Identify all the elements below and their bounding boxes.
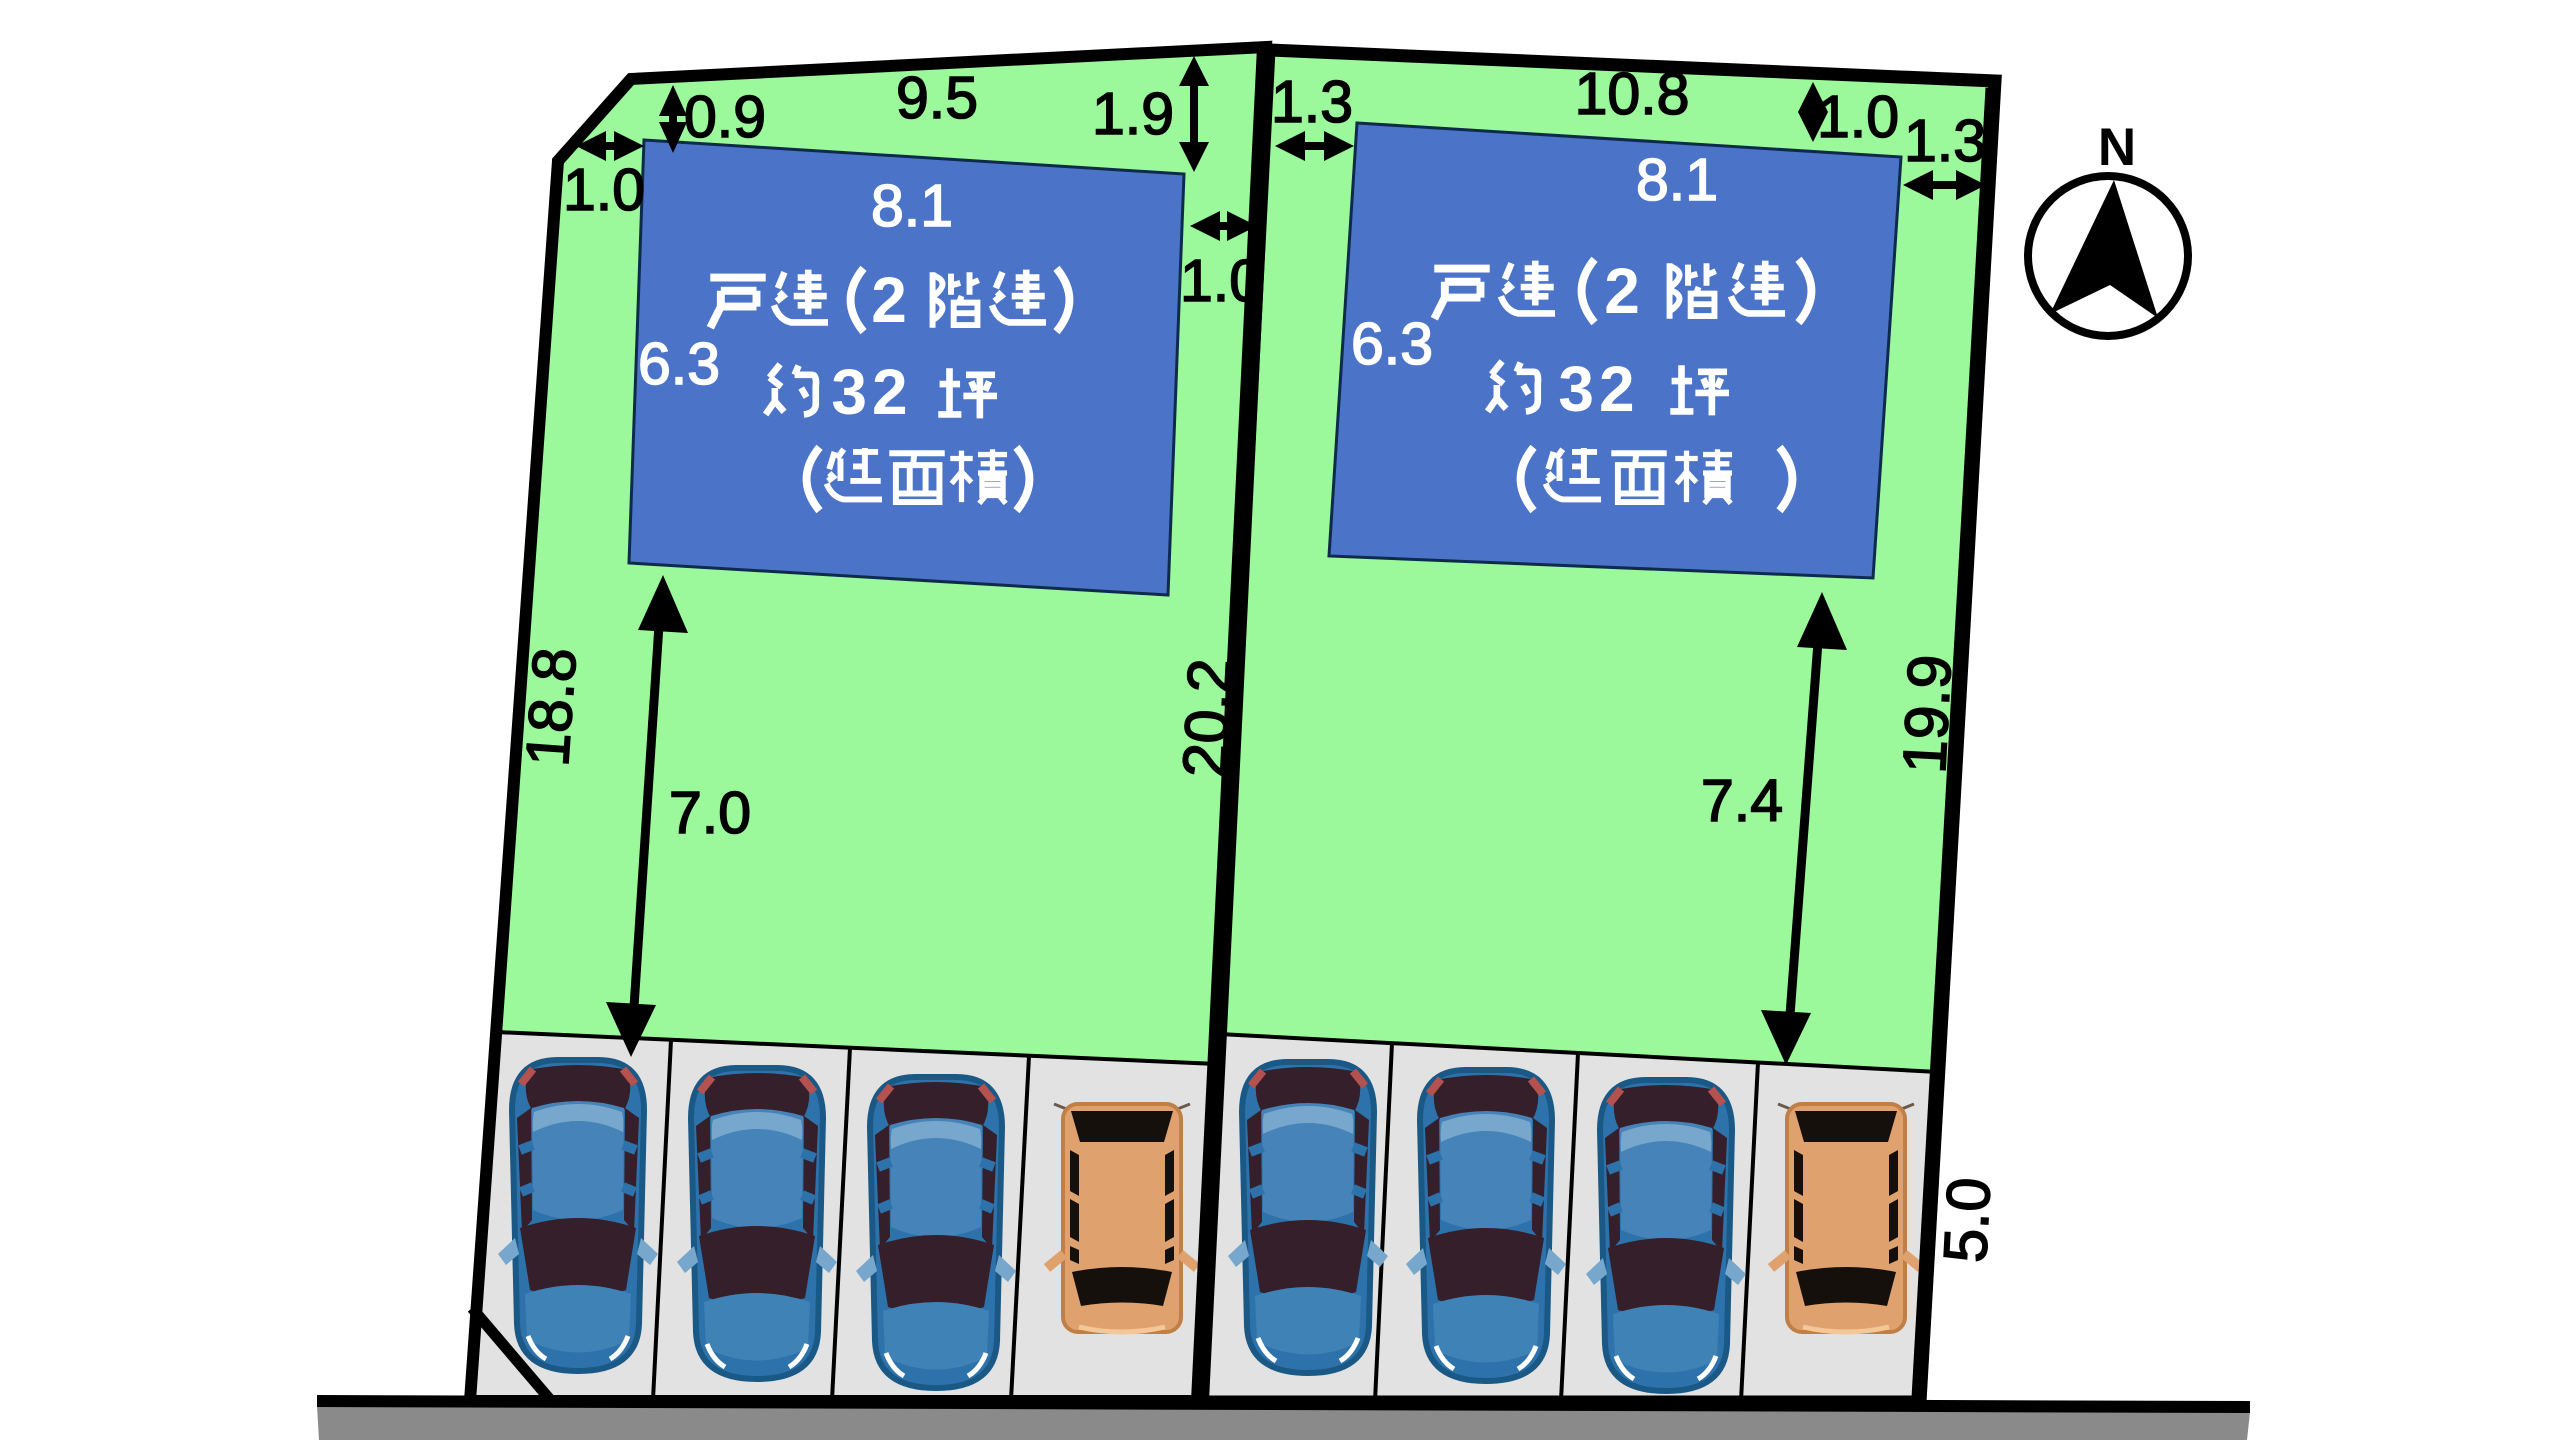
svg-text:10.8: 10.8 (1575, 61, 1690, 127)
svg-text:9.5: 9.5 (896, 65, 978, 131)
svg-text:1.9: 1.9 (1092, 81, 1174, 147)
svg-text:19.9: 19.9 (1890, 653, 1964, 775)
svg-text:6.3: 6.3 (638, 331, 720, 397)
svg-text:8.1: 8.1 (871, 173, 953, 239)
svg-text:18.8: 18.8 (513, 645, 589, 768)
svg-text:1.0: 1.0 (1180, 248, 1262, 314)
svg-text:1.3: 1.3 (1271, 69, 1353, 135)
svg-text:0.9: 0.9 (684, 84, 766, 150)
svg-text:1.0: 1.0 (563, 157, 645, 223)
svg-text:6.3: 6.3 (1351, 311, 1433, 377)
svg-text:7.0: 7.0 (669, 780, 751, 846)
svg-text:1.0: 1.0 (1817, 84, 1899, 150)
svg-text:1.3: 1.3 (1904, 108, 1986, 174)
svg-text:32: 32 (1558, 353, 1639, 425)
svg-text:N: N (2098, 118, 2136, 177)
svg-text:2: 2 (871, 264, 907, 336)
svg-text:8.1: 8.1 (1636, 147, 1718, 213)
svg-text:5.0: 5.0 (1931, 1176, 2003, 1264)
svg-text:32: 32 (831, 356, 912, 428)
svg-text:20.2: 20.2 (1170, 657, 1244, 779)
svg-text:2: 2 (1604, 255, 1640, 327)
svg-text:7.4: 7.4 (1701, 768, 1783, 834)
